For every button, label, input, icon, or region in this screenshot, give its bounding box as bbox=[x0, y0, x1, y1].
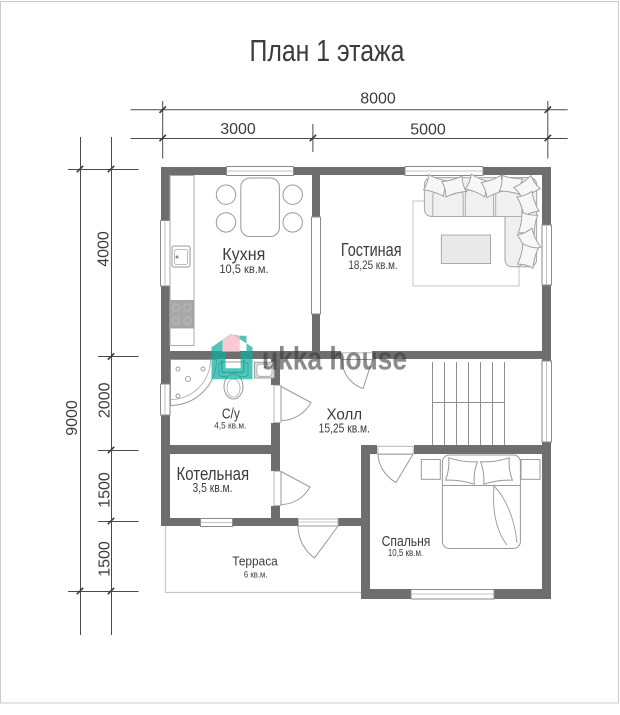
svg-text:2000: 2000 bbox=[97, 382, 114, 418]
svg-text:8000: 8000 bbox=[360, 91, 396, 108]
svg-text:Гостиная: Гостиная bbox=[341, 239, 402, 260]
svg-text:5000: 5000 bbox=[410, 122, 446, 139]
svg-text:9000: 9000 bbox=[64, 400, 81, 436]
svg-text:6 кв.м.: 6 кв.м. bbox=[244, 570, 268, 581]
svg-text:10,5 кв.м.: 10,5 кв.м. bbox=[388, 548, 423, 559]
svg-text:1500: 1500 bbox=[97, 472, 114, 508]
svg-text:15,25 кв.м.: 15,25 кв.м. bbox=[319, 421, 370, 436]
svg-text:3,5 кв.м.: 3,5 кв.м. bbox=[193, 480, 233, 495]
svg-text:Кухня: Кухня bbox=[222, 244, 265, 264]
svg-text:Терраса: Терраса bbox=[232, 554, 278, 569]
svg-text:ukka house: ukka house bbox=[262, 341, 407, 377]
svg-text:1500: 1500 bbox=[97, 541, 114, 577]
svg-text:3000: 3000 bbox=[220, 121, 256, 138]
svg-text:План 1 этажа: План 1 этажа bbox=[250, 33, 406, 68]
svg-text:18,25 кв.м.: 18,25 кв.м. bbox=[348, 258, 397, 272]
svg-text:10,5 кв.м.: 10,5 кв.м. bbox=[219, 262, 268, 276]
svg-text:4000: 4000 bbox=[96, 231, 113, 267]
svg-text:4,5 кв.м.: 4,5 кв.м. bbox=[214, 421, 246, 431]
